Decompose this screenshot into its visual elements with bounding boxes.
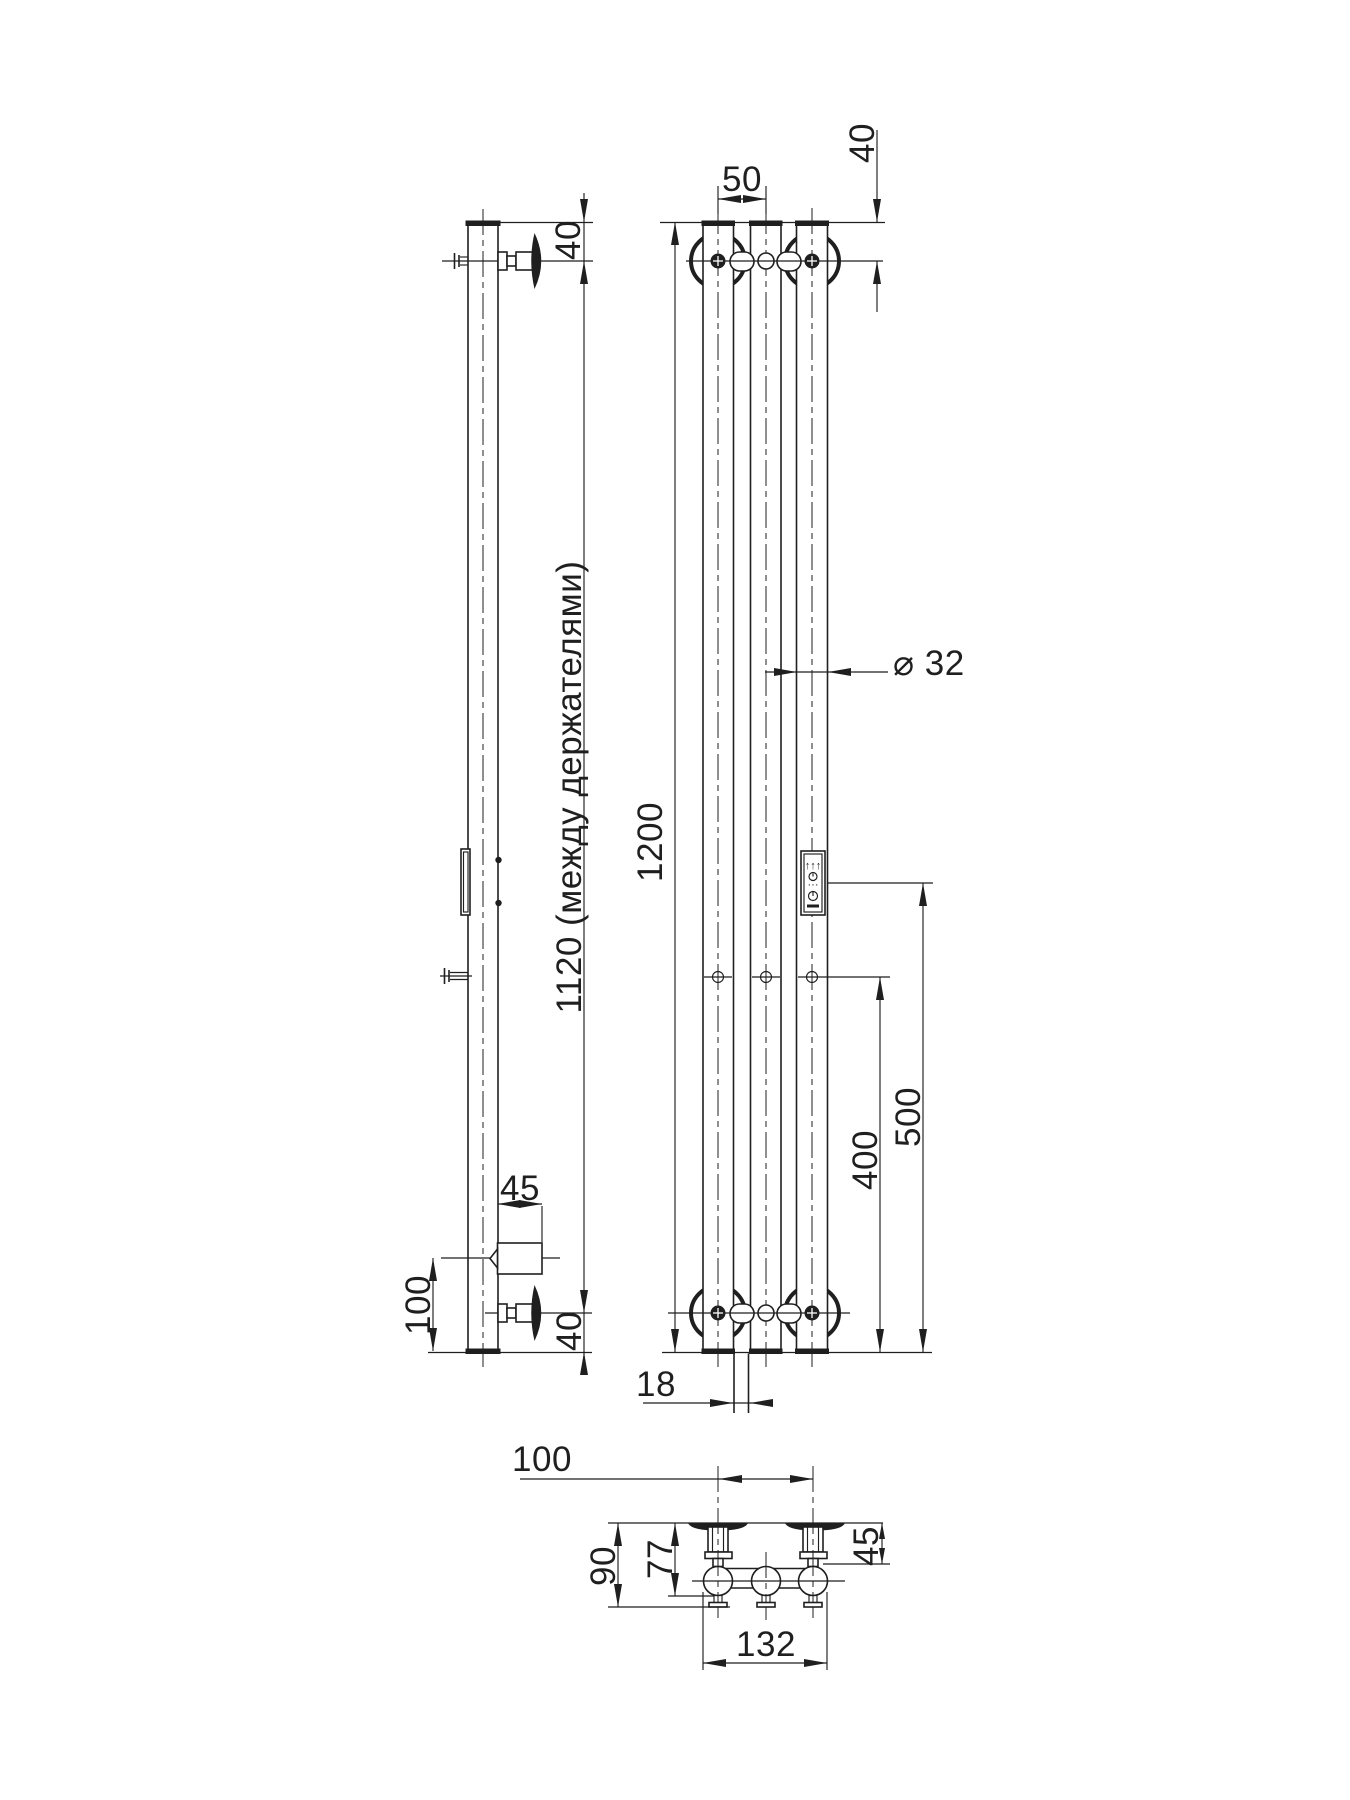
- dim-tube-pitch-label: 50: [722, 160, 762, 199]
- front-bottom-cap: [795, 1349, 829, 1355]
- dim-overall-height-label: 1200: [631, 802, 670, 882]
- dim-depth-overall-label: 90: [584, 1546, 623, 1586]
- dim-holes-height: 400: [846, 977, 885, 1352]
- panel-arrows-icon: ↑↑↑: [805, 860, 822, 872]
- side-tube: [468, 209, 498, 1367]
- side-bottom-cap: [466, 1349, 501, 1355]
- dim-side-top-offset-label: 40: [549, 220, 588, 260]
- holder-screw-icon: [805, 254, 820, 269]
- side-stud-icon: [495, 900, 501, 906]
- dim-holes-height-label: 400: [846, 1130, 885, 1190]
- dim-ten-height: 100: [399, 1258, 438, 1351]
- front-bottom-cap: [702, 1349, 736, 1355]
- dim-ten-width-label: 45: [500, 1169, 540, 1208]
- front-top-cap: [702, 221, 736, 227]
- dim-tube-diameter: ⌀ 32: [765, 644, 965, 683]
- dim-ten-width: 45: [498, 1169, 543, 1242]
- dim-panel-height-label: 500: [889, 1087, 928, 1147]
- front-top-cap: [749, 221, 783, 227]
- dim-between-holders-label: 1120 (между держателями): [550, 561, 589, 1014]
- dim-side-vertical-chain: 40 1120 (между держателями) 40: [549, 193, 589, 1375]
- dim-front-top-offset-label: 40: [843, 123, 882, 163]
- side-top-cap: [466, 221, 501, 227]
- dim-depth-to-tube: 77: [641, 1523, 714, 1596]
- bottom-riser-pipe: [734, 1354, 749, 1414]
- dim-riser-width: 18: [636, 1365, 773, 1407]
- holder-screw-icon: [711, 1306, 726, 1321]
- dim-tube-diameter-label: ⌀ 32: [893, 644, 965, 683]
- control-panel: ↑↑↑ ···: [801, 851, 825, 915]
- front-top-cap: [795, 221, 829, 227]
- side-heating-element: [441, 1243, 560, 1274]
- dim-ten-height-label: 100: [399, 1275, 438, 1335]
- side-bottom-flange: [531, 1285, 541, 1341]
- dim-depth-to-tube-label: 77: [641, 1539, 680, 1579]
- dim-front-top-offset: 40: [843, 123, 882, 312]
- holder-screw-icon: [805, 1306, 820, 1321]
- drawing-sheet: ↑↑↑ ···: [0, 0, 1350, 1800]
- side-stud-icon: [495, 857, 501, 863]
- dim-side-bottom-offset-label: 40: [550, 1311, 589, 1351]
- dim-holder-offset: 45: [823, 1523, 890, 1566]
- front-bottom-cap: [749, 1349, 783, 1355]
- dim-overall-width-label: 132: [736, 1625, 796, 1664]
- front-tubes: [703, 208, 828, 1367]
- dim-holder-pitch-label: 100: [512, 1440, 572, 1479]
- holder-screw-icon: [711, 254, 726, 269]
- panel-heat-bar-icon: [807, 905, 819, 908]
- front-view: ↑↑↑ ···: [668, 208, 890, 1413]
- towel-rail-drawing: ↑↑↑ ···: [0, 0, 1350, 1800]
- dim-tube-pitch: 50: [718, 160, 766, 214]
- panel-dots-icon: ···: [808, 879, 819, 891]
- dim-holder-pitch: 100: [512, 1440, 813, 1483]
- side-top-flange: [531, 233, 541, 289]
- dim-riser-width-label: 18: [636, 1365, 676, 1404]
- dim-overall-height: 1200: [631, 222, 679, 1352]
- dim-holder-offset-label: 45: [847, 1526, 886, 1566]
